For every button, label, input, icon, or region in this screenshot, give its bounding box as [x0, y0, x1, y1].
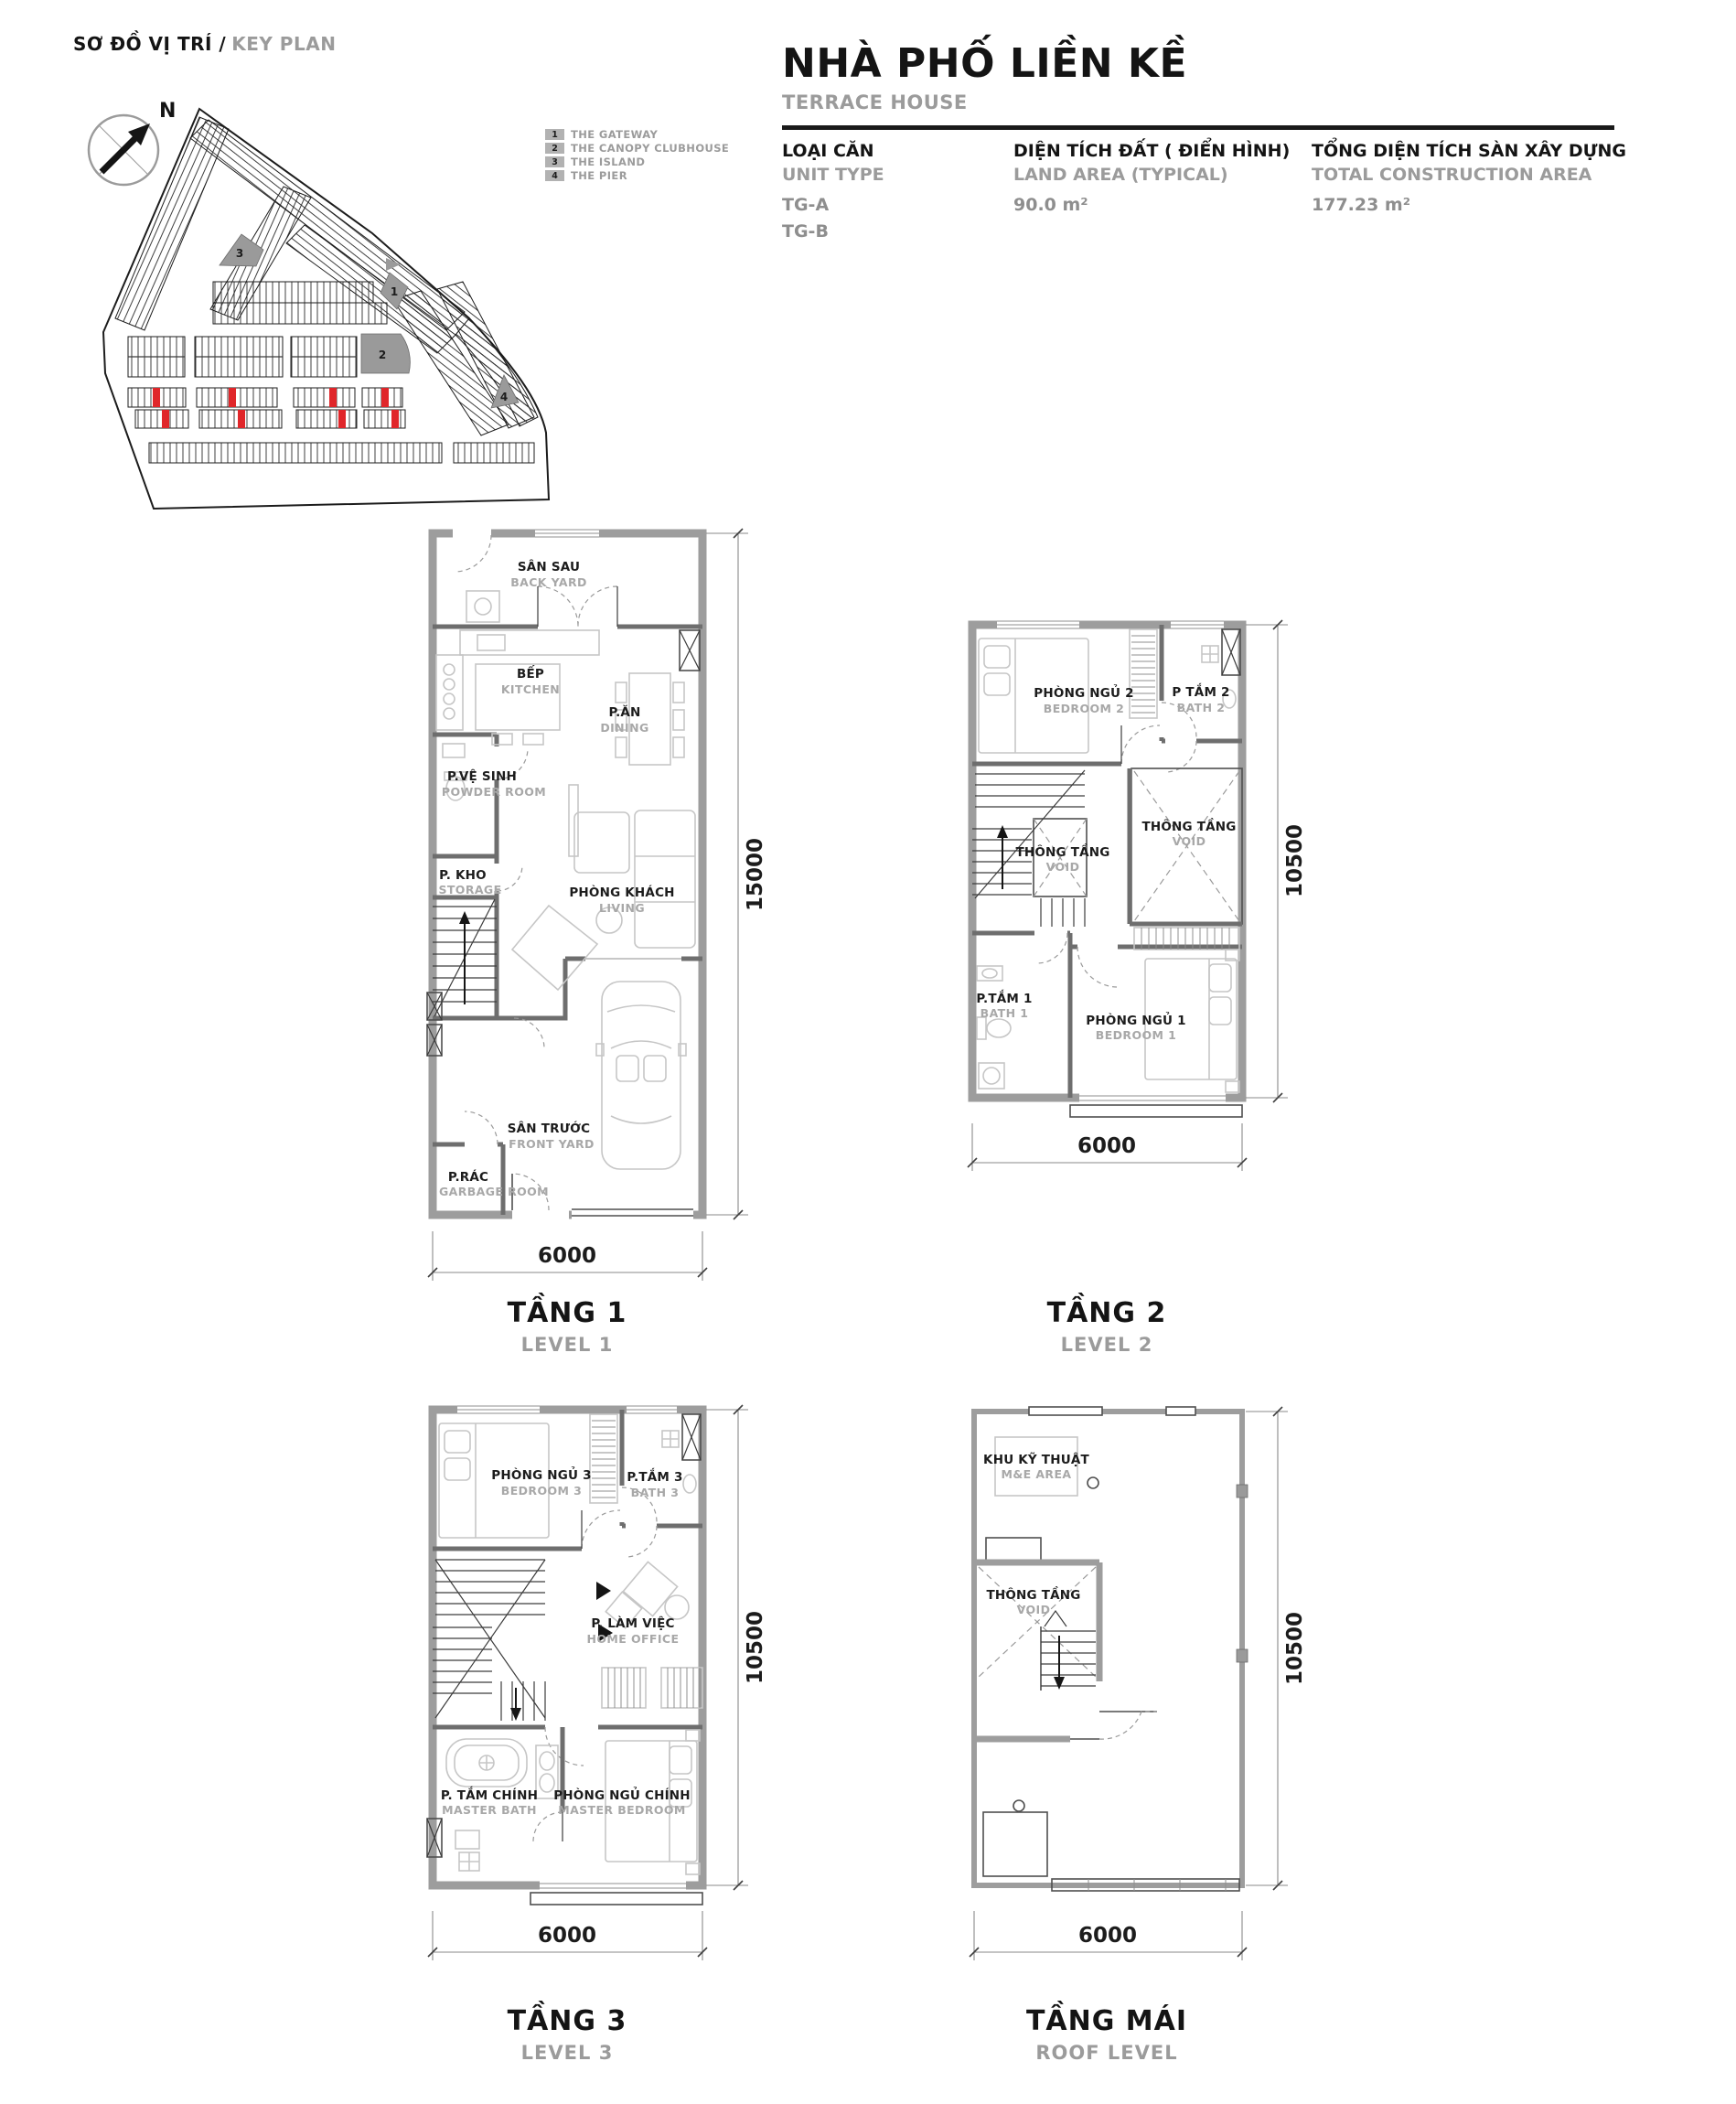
construction-area-column: TỔNG DIỆN TÍCH SÀN XÂY DỰNG TOTAL CONSTR… [1312, 141, 1614, 244]
dim-height: 10500 [1283, 824, 1307, 897]
room-labels: KHU KỸ THUẬT M&E AREA THÔNG TẦNG VOID [983, 1451, 1089, 1616]
room-label-master-bedroom-vn: PHÒNG NGỦ CHÍNH [553, 1786, 691, 1803]
room-label-powder-vn: P.VỆ SINH [447, 768, 517, 784]
stairs [433, 1560, 545, 1721]
room-label-bath2-vn: P TẮM 2 [1172, 682, 1229, 700]
construction-area-value: 177.23 m² [1312, 192, 1614, 219]
room-label-living-vn: PHÒNG KHÁCH [569, 884, 674, 900]
room-label-powder-en: POWDER ROOM [442, 785, 546, 799]
dimensions: 15000 6000 [428, 529, 767, 1281]
dim-height: 15000 [744, 838, 767, 911]
legend-item-gateway: 1 THE GATEWAY [545, 129, 729, 140]
unit-type-column: LOẠI CĂN UNIT TYPE TG-A TG-B [782, 141, 1013, 244]
level-3-plan: PHÒNG NGỦ 3 BEDROOM 3 P.TẮM 3 BATH 3 P. … [402, 1402, 796, 1962]
keyplan-title: SƠ ĐỒ VỊ TRÍ /KEY PLAN [73, 33, 336, 55]
room-label-back-yard-en: BACK YARD [510, 575, 587, 589]
room-label-bath2-en: BATH 2 [1177, 701, 1226, 714]
dim-width: 6000 [538, 1244, 596, 1268]
car-icon [596, 982, 686, 1169]
marker-3-label: 3 [236, 247, 243, 260]
dim-height: 10500 [744, 1611, 767, 1684]
unit-type-values: TG-A TG-B [782, 192, 1013, 244]
legend-marker: 1 [545, 129, 564, 140]
room-label-garbage-en: GARBAGE ROOM [439, 1185, 549, 1198]
level-1-plan: SÂN SAU BACK YARD BẾP KITCHEN P.ĂN DININ… [402, 510, 796, 1283]
dim-width: 6000 [538, 1924, 596, 1948]
marker-2-label: 2 [379, 349, 386, 361]
room-label-void-big-en: VOID [1173, 834, 1206, 848]
room-label-void-en: VOID [1017, 1603, 1051, 1616]
room-label-void-small-en: VOID [1046, 860, 1080, 874]
room-label-bath1-vn: P.TẮM 1 [976, 989, 1032, 1006]
room-label-dining-vn: P.ĂN [608, 703, 640, 720]
room-label-master-bath-en: MASTER BATH [442, 1803, 537, 1817]
level-2-title: TẦNG 2 LEVEL 2 [942, 1297, 1271, 1356]
room-label-home-office-en: HOME OFFICE [587, 1632, 680, 1646]
room-label-me-area-en: M&E AREA [1002, 1467, 1072, 1481]
legend-marker: 3 [545, 156, 564, 167]
legend-marker: 2 [545, 143, 564, 154]
keyplan-legend: 1 THE GATEWAY 2 THE CANOPY CLUBHOUSE 3 T… [545, 129, 729, 181]
room-label-kitchen-en: KITCHEN [501, 682, 560, 696]
dim-width: 6000 [1077, 1134, 1136, 1158]
level-1-title: TẦNG 1 LEVEL 1 [402, 1297, 732, 1356]
keyplan-title-vn: SƠ ĐỒ VỊ TRÍ / [73, 33, 226, 55]
room-label-bath3-en: BATH 3 [631, 1486, 680, 1499]
room-label-garbage-vn: P.RÁC [448, 1169, 488, 1185]
room-label-master-bedroom-en: MASTER BEDROOM [558, 1803, 686, 1817]
room-label-void-big-vn: THÔNG TẦNG [1141, 817, 1236, 834]
room-label-bath3-vn: P.TẮM 3 [627, 1467, 682, 1485]
compass-icon: N [89, 100, 176, 185]
marker-1-label: 1 [391, 285, 398, 298]
page-title: NHÀ PHỐ LIỀN KỀ [782, 44, 1614, 84]
room-label-kitchen-vn: BẾP [517, 664, 544, 682]
room-label-bedroom3-en: BEDROOM 3 [501, 1484, 582, 1497]
room-label-me-area-vn: KHU KỸ THUẬT [983, 1451, 1089, 1467]
sheet-header: NHÀ PHỐ LIỀN KỀ TERRACE HOUSE LOẠI CĂN U… [782, 44, 1614, 244]
page-subtitle: TERRACE HOUSE [782, 91, 1614, 113]
room-label-front-yard-en: FRONT YARD [509, 1137, 595, 1151]
room-label-bedroom3-vn: PHÒNG NGỦ 3 [491, 1465, 591, 1483]
marker-4-label: 4 [500, 391, 508, 403]
room-label-storage-en: STORAGE [438, 883, 501, 896]
dim-height: 10500 [1283, 1612, 1307, 1685]
room-label-bath1-en: BATH 1 [981, 1006, 1029, 1020]
land-area-value: 90.0 m² [1013, 192, 1312, 219]
room-label-home-office-vn: P. LÀM VIỆC [591, 1615, 674, 1631]
legend-item-pier: 4 THE PIER [545, 170, 729, 181]
stairs [979, 1567, 1096, 1691]
room-label-void-small-vn: THÔNG TẦNG [1015, 843, 1109, 860]
room-label-living-en: LIVING [599, 901, 645, 915]
room-label-master-bath-vn: P. TẮM CHÍNH [441, 1786, 538, 1803]
roof-plan: KHU KỸ THUẬT M&E AREA THÔNG TẦNG VOID 10… [942, 1402, 1335, 1962]
plan-sheet: SƠ ĐỒ VỊ TRÍ /KEY PLAN N [0, 0, 1736, 2104]
room-label-storage-vn: P. KHO [439, 868, 487, 883]
room-label-bedroom1-vn: PHÒNG NGỦ 1 [1086, 1011, 1185, 1028]
room-label-dining-en: DINING [600, 721, 648, 735]
keyplan-title-en: KEY PLAN [231, 33, 336, 55]
dimensions: 10500 6000 [970, 1407, 1307, 1960]
legend-marker: 4 [545, 170, 564, 181]
room-labels: PHÒNG NGỦ 3 BEDROOM 3 P.TẮM 3 BATH 3 P. … [441, 1465, 691, 1817]
legend-item-canopy-clubhouse: 2 THE CANOPY CLUBHOUSE [545, 143, 729, 154]
room-label-back-yard-vn: SÂN SAU [518, 559, 580, 574]
room-label-front-yard-vn: SÂN TRƯỚC [508, 1120, 591, 1136]
room-label-void-vn: THÔNG TẦNG [986, 1585, 1080, 1603]
header-divider [782, 125, 1614, 130]
level-2-plan: PHÒNG NGỦ 2 BEDROOM 2 P TẮM 2 BATH 2 THÔ… [942, 595, 1335, 1171]
roof-level-title: TẦNG MÁI ROOF LEVEL [942, 2005, 1271, 2064]
room-label-bedroom2-vn: PHÒNG NGỦ 2 [1034, 683, 1133, 701]
legend-item-island: 3 THE ISLAND [545, 156, 729, 167]
dimensions: 10500 6000 [968, 620, 1307, 1171]
land-area-column: DIỆN TÍCH ĐẤT ( ĐIỂN HÌNH) LAND AREA (TY… [1013, 141, 1312, 244]
dim-width: 6000 [1078, 1924, 1137, 1948]
room-label-bedroom2-en: BEDROOM 2 [1044, 702, 1124, 715]
north-label: N [159, 100, 176, 123]
level-3-title: TẦNG 3 LEVEL 3 [402, 2005, 732, 2064]
room-label-bedroom1-en: BEDROOM 1 [1096, 1028, 1176, 1042]
